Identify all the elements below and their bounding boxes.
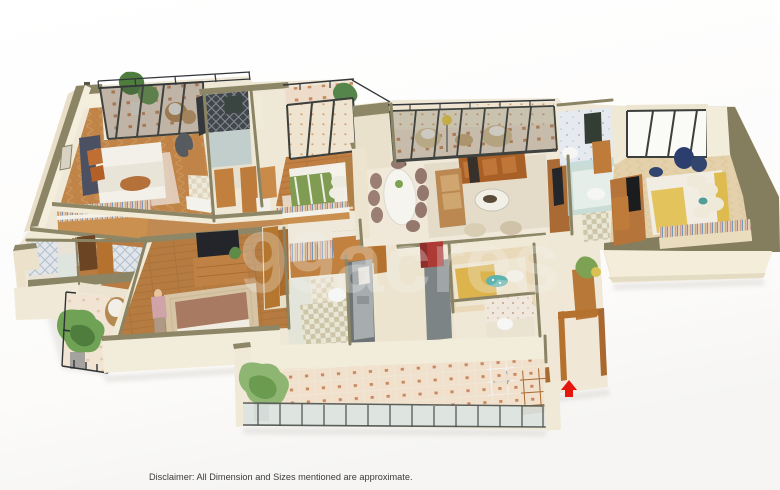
svg-text:99acres: 99acres bbox=[240, 215, 560, 311]
svg-text:Disclaimer: All Dimension and: Disclaimer: All Dimension and Sizes ment… bbox=[149, 472, 413, 482]
